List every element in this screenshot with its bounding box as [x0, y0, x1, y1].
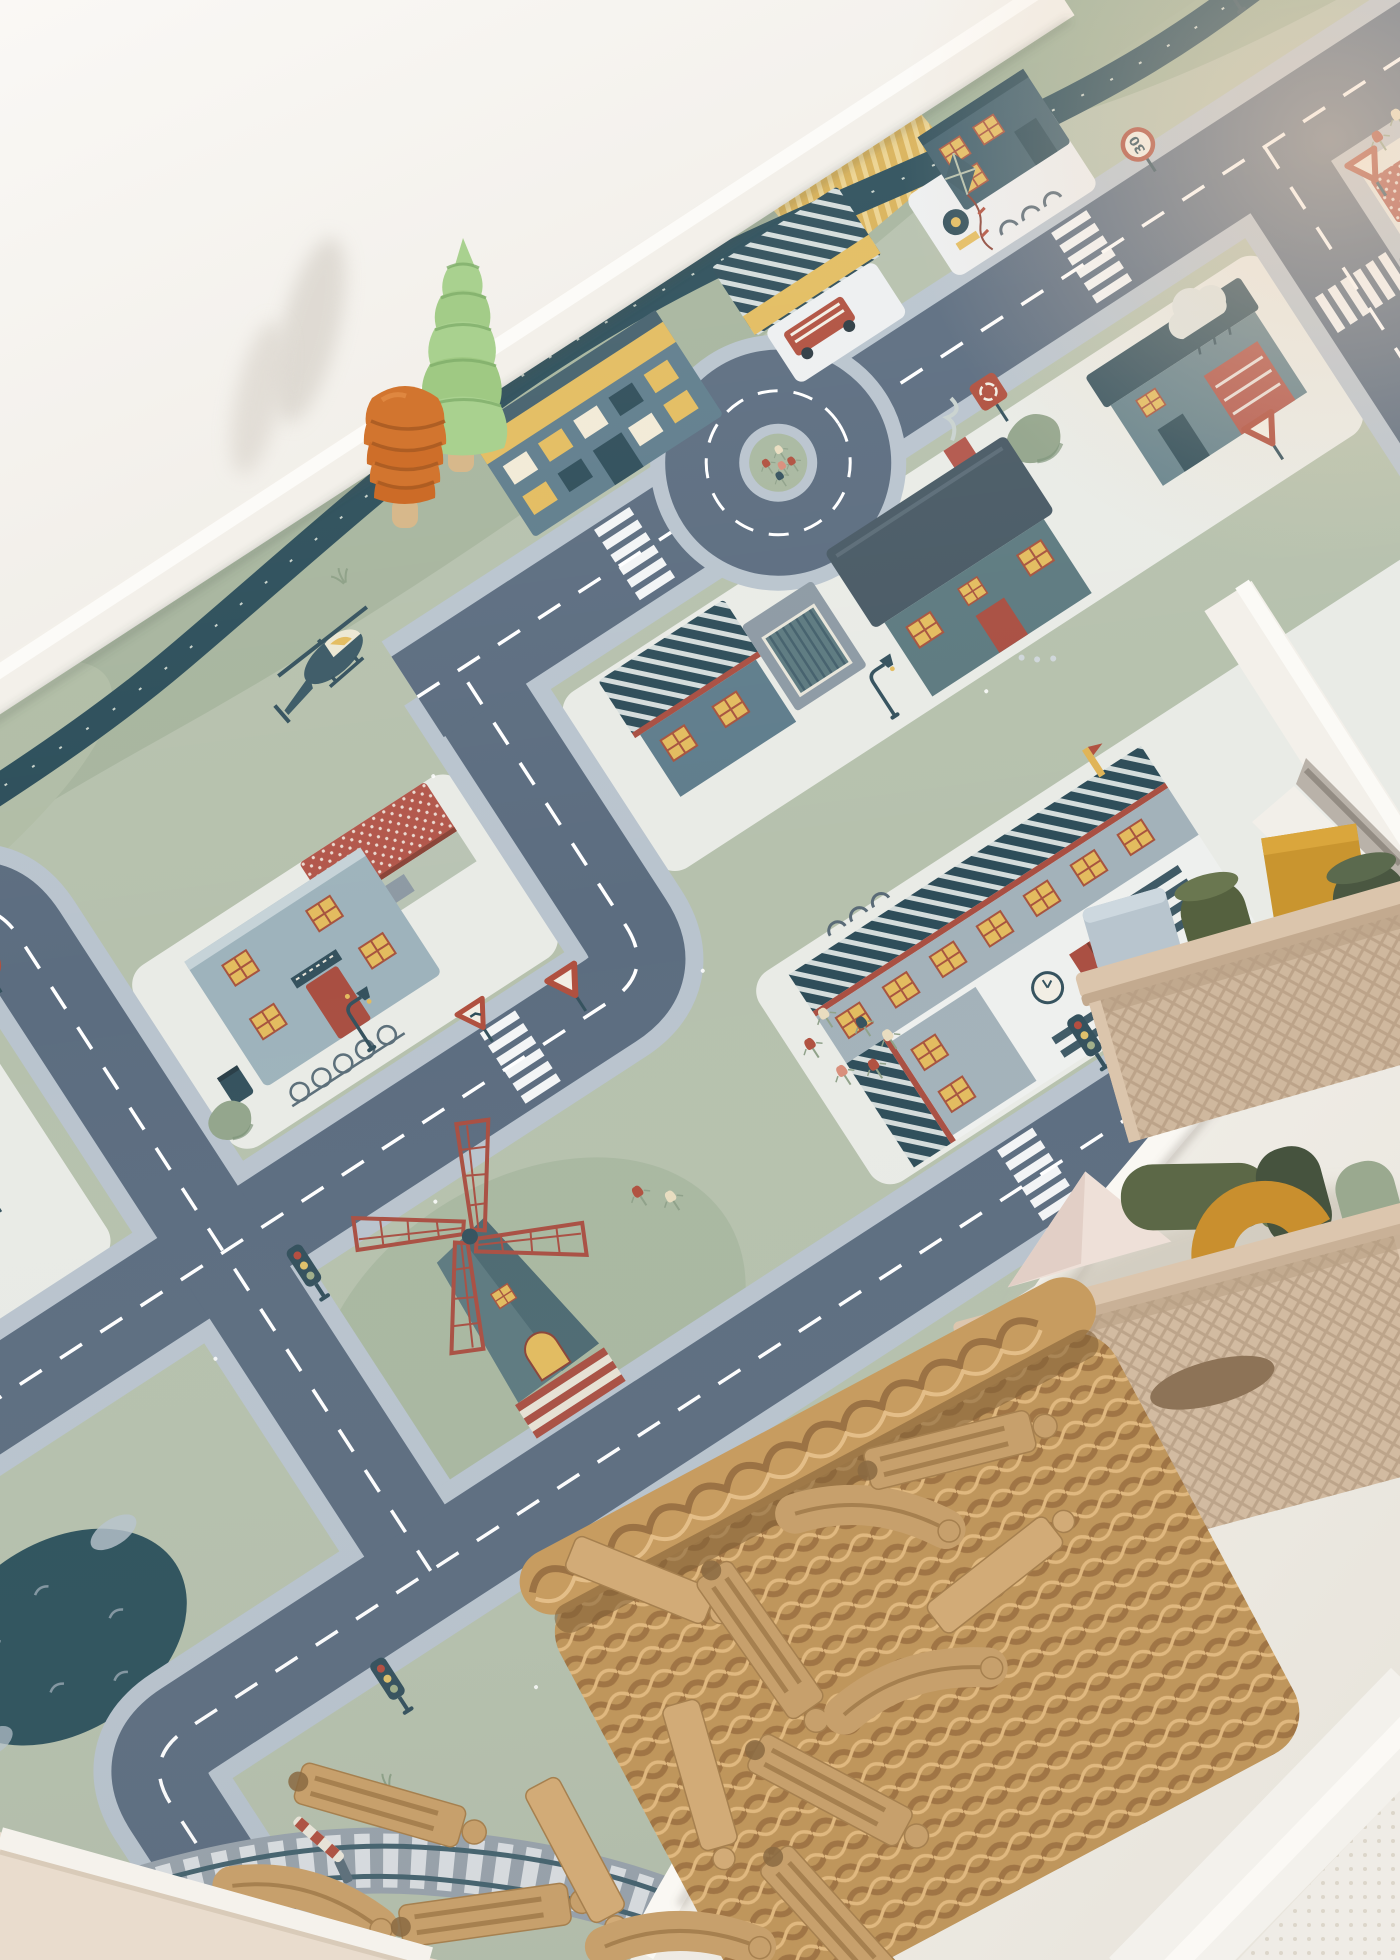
photo-recreation: 30	[0, 0, 1400, 1960]
